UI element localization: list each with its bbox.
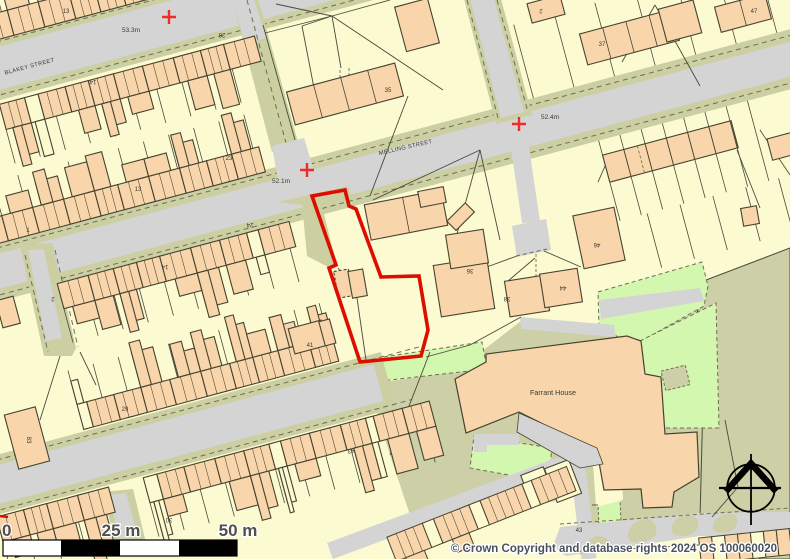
svg-text:41: 41: [307, 343, 314, 349]
svg-text:14: 14: [89, 78, 96, 84]
svg-text:53.3m: 53.3m: [122, 27, 140, 34]
svg-text:23: 23: [226, 156, 233, 162]
svg-text:83: 83: [25, 437, 31, 444]
svg-text:47: 47: [751, 9, 758, 15]
svg-text:50 m: 50 m: [219, 521, 258, 540]
svg-text:30: 30: [165, 516, 172, 522]
svg-text:Farrant House: Farrant House: [530, 388, 576, 397]
svg-text:36: 36: [466, 267, 473, 273]
svg-text:46: 46: [593, 241, 600, 247]
svg-text:38: 38: [503, 295, 510, 301]
svg-text:52.1m: 52.1m: [272, 178, 290, 185]
svg-text:14: 14: [161, 263, 168, 269]
svg-text:29: 29: [122, 407, 129, 413]
svg-text:0: 0: [2, 521, 11, 540]
svg-text:24: 24: [246, 221, 253, 227]
svg-text:25 m: 25 m: [102, 521, 141, 540]
svg-text:13: 13: [135, 187, 142, 193]
svg-text:28: 28: [218, 31, 225, 37]
svg-text:37: 37: [599, 42, 606, 48]
svg-text:35: 35: [385, 88, 392, 94]
svg-text:52.4m: 52.4m: [541, 114, 559, 121]
svg-text:© Crown Copyright and database: © Crown Copyright and database rights 20…: [451, 543, 777, 555]
svg-text:43: 43: [576, 528, 583, 534]
svg-text:43: 43: [347, 447, 354, 453]
svg-text:13: 13: [63, 9, 70, 15]
svg-text:44: 44: [559, 284, 566, 290]
